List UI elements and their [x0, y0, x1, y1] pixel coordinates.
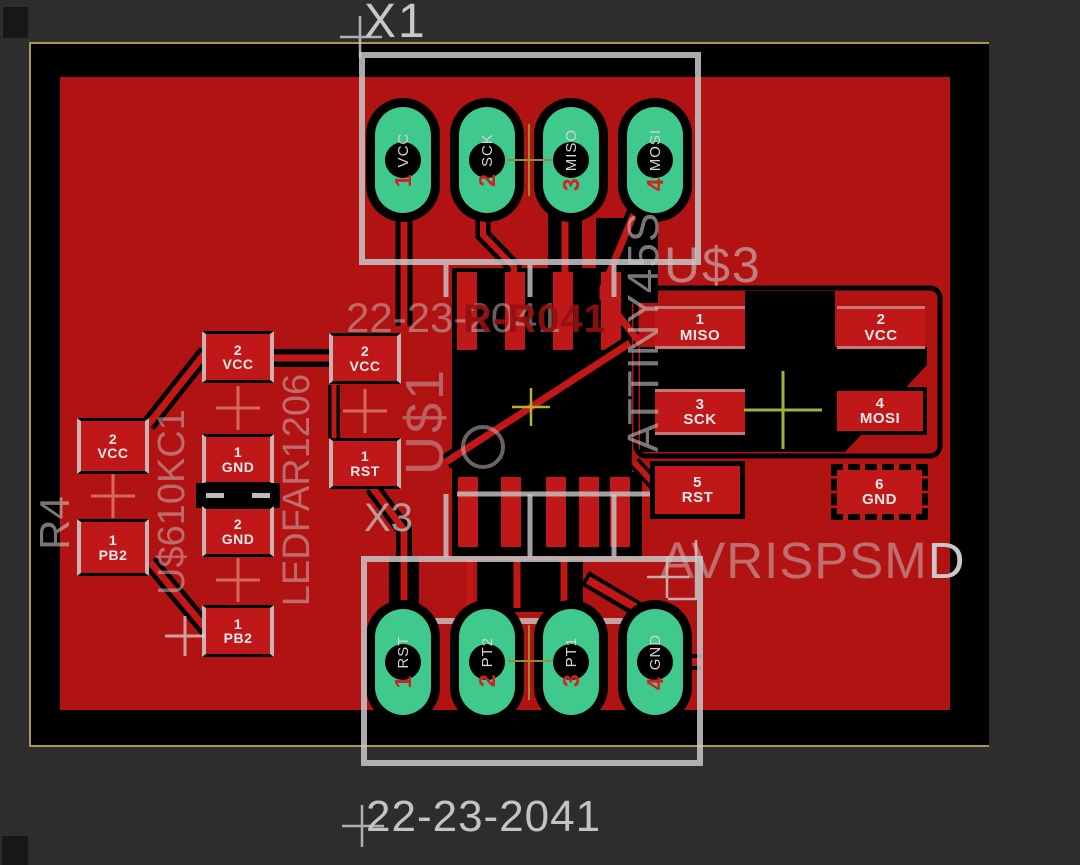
label-attiny45[interactable]: ATTINY45S	[618, 152, 670, 512]
pad-net: MOSI	[860, 411, 900, 426]
pad-isolation-gap	[196, 483, 280, 508]
pad-target-vcc[interactable]: 2VCC	[837, 306, 925, 349]
label-resistor-array[interactable]: R-R041	[463, 297, 607, 342]
pad-net: RST	[350, 464, 380, 478]
pad-net: RST	[682, 490, 714, 505]
pad-number: 1	[350, 449, 380, 463]
pad-number: 1	[222, 445, 255, 459]
pad-net: GND	[222, 460, 255, 474]
label-r4[interactable]: R4	[32, 468, 78, 578]
pad-net: MISO	[680, 328, 720, 343]
label-x3-value[interactable]: 22-23-2041	[366, 792, 601, 842]
label-led[interactable]: LEDFAR1206	[275, 325, 319, 655]
pad-net: VCC	[864, 328, 897, 343]
board-name-on-copper: AVRISPSM	[660, 532, 928, 589]
pad-col1-pb2[interactable]: 1PB2	[202, 605, 274, 657]
pad-r4-pb2[interactable]: 1PB2	[77, 519, 149, 576]
pad-number: 1	[99, 533, 128, 547]
pad-net: VCC	[349, 359, 380, 373]
pad-number: 5	[682, 475, 714, 490]
label-x1[interactable]: X1	[364, 0, 427, 49]
pad-net: GND	[862, 492, 897, 507]
corner-mark-top-left	[3, 7, 28, 38]
pad-net: VCC	[222, 357, 253, 371]
pad-col1-gnd2[interactable]: 2GND	[202, 506, 274, 557]
pad-target-mosi[interactable]: 4MOSI	[833, 387, 927, 435]
pad-number: 3	[683, 397, 716, 412]
pad-net: VCC	[97, 446, 128, 460]
corner-mark-bottom-left	[2, 836, 28, 865]
pad-number: 6	[862, 477, 897, 492]
pad-r4-vcc[interactable]: 2VCC	[77, 418, 149, 474]
pad-number: 2	[864, 312, 897, 327]
pcb-editor-viewport: 2VCC 1PB2 2VCC 1GND 2GND 1PB2 2VCC 1RST …	[0, 0, 1080, 865]
pad-number: 2	[222, 343, 253, 357]
pad-net: GND	[222, 532, 255, 546]
label-u1[interactable]: U$1	[399, 326, 451, 516]
pad-number: 2	[97, 432, 128, 446]
pad-net: PB2	[224, 631, 253, 645]
pad-target-gnd[interactable]: 6GND	[831, 464, 928, 520]
pad-col1-gnd1[interactable]: 1GND	[202, 434, 274, 485]
pad-number: 1	[680, 312, 720, 327]
label-board-name[interactable]: AVRISPSMD	[660, 531, 966, 590]
pad-number: 1	[224, 617, 253, 631]
pad-number: 4	[860, 396, 900, 411]
pad-col2-rst[interactable]: 1RST	[329, 438, 401, 489]
label-resistor-value[interactable]: U$610KC1	[150, 352, 194, 652]
label-u3[interactable]: U$3	[664, 236, 762, 294]
pad-number: 2	[222, 517, 255, 531]
pad-col1-vcc[interactable]: 2VCC	[202, 331, 274, 383]
pad-net: SCK	[683, 412, 716, 427]
pad-net: PB2	[99, 548, 128, 562]
connector-x3-outline[interactable]	[361, 556, 703, 766]
pad-number: 2	[349, 344, 380, 358]
board-name-on-black: D	[928, 532, 966, 589]
